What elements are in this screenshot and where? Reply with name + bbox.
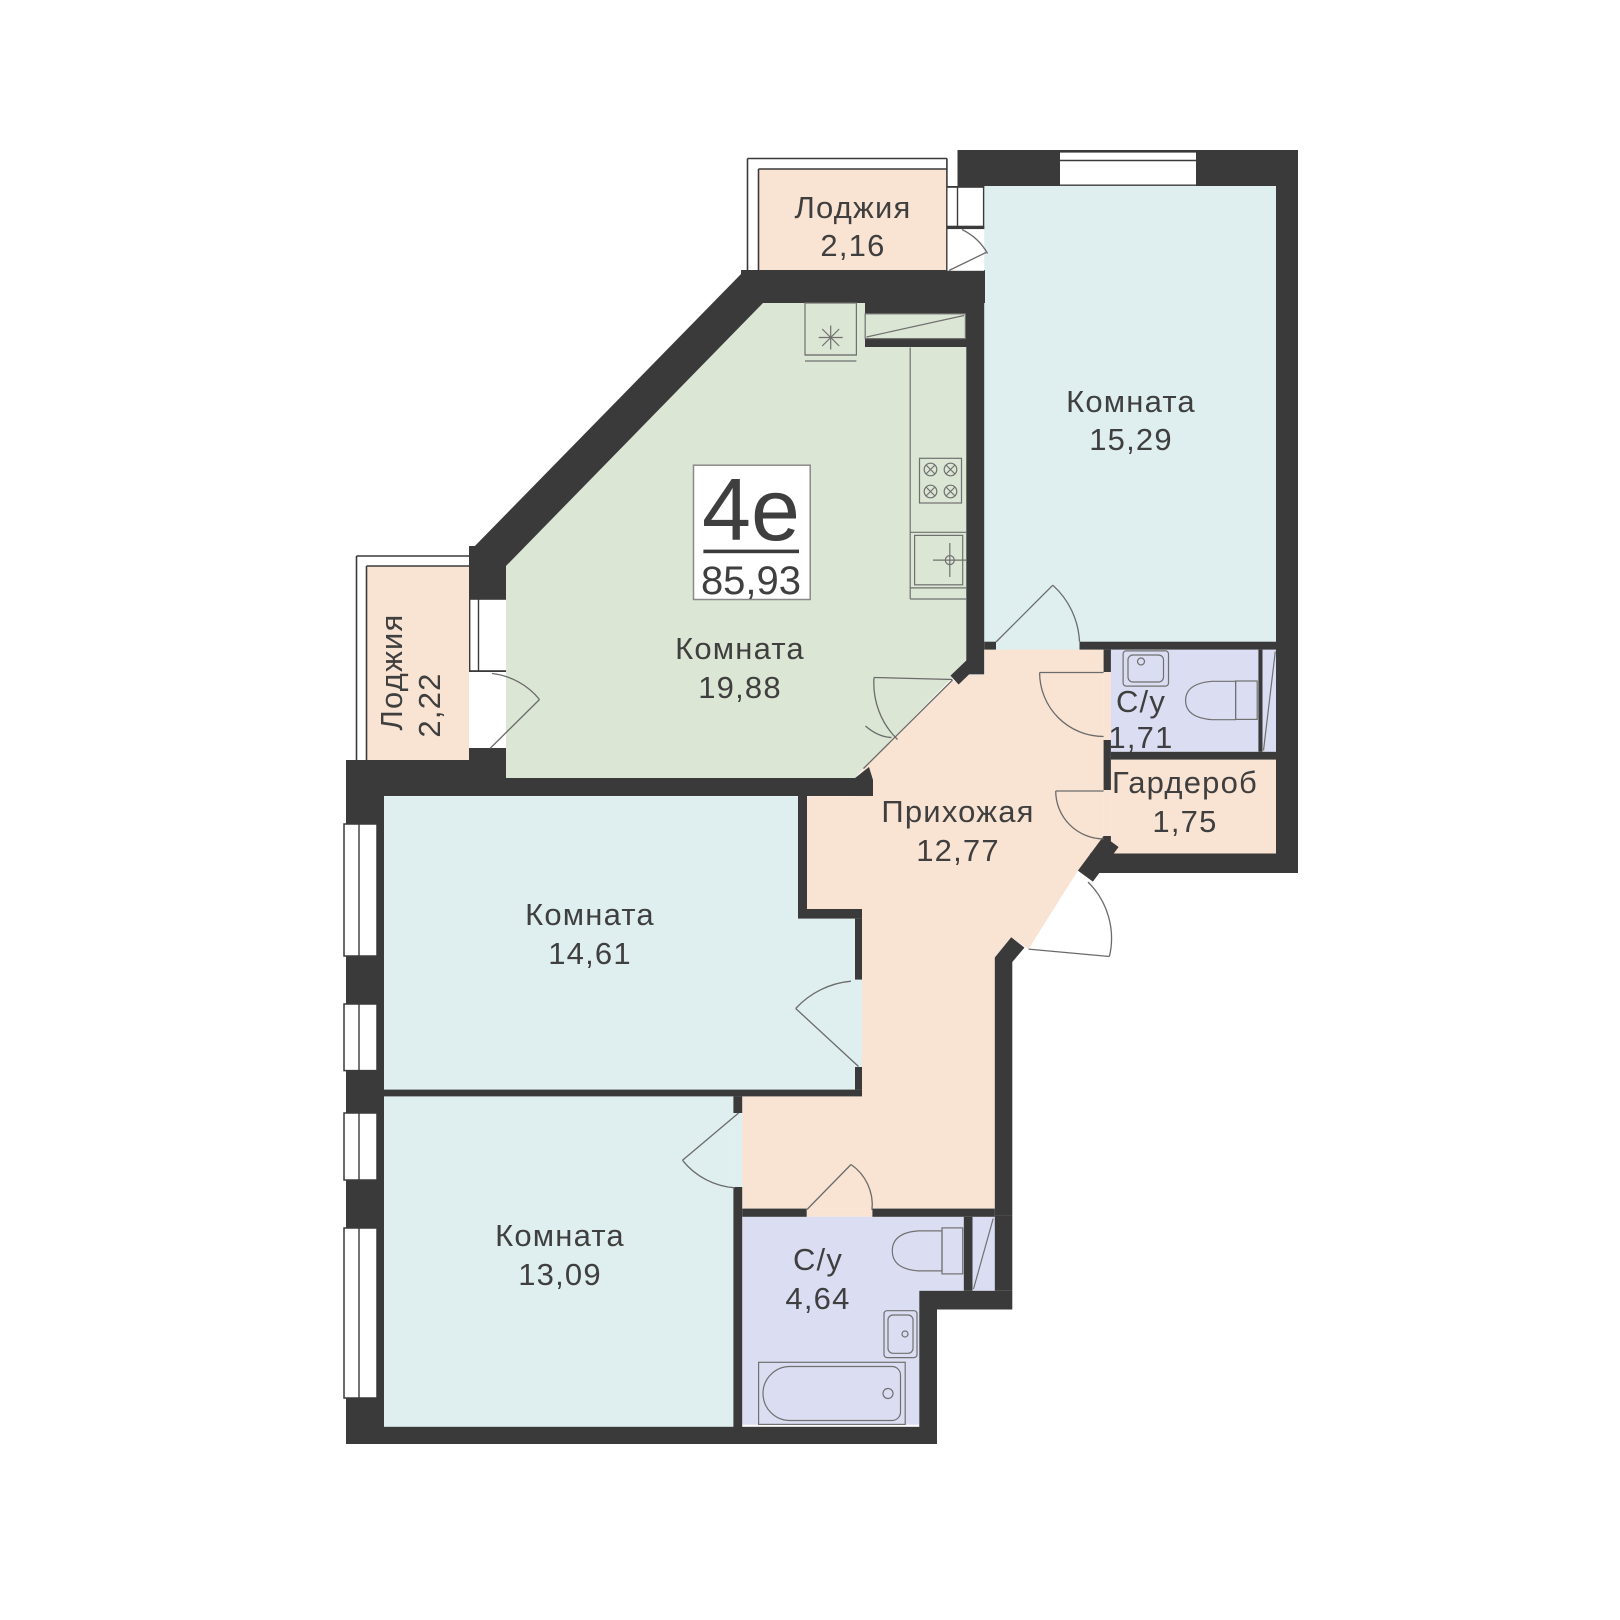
svg-text:Лоджия: Лоджия bbox=[374, 613, 409, 730]
svg-text:1,75: 1,75 bbox=[1152, 804, 1217, 839]
svg-text:Комната: Комната bbox=[495, 1218, 625, 1253]
svg-text:Гардероб: Гардероб bbox=[1112, 765, 1258, 800]
svg-text:С/у: С/у bbox=[1116, 684, 1166, 719]
svg-text:12,77: 12,77 bbox=[916, 833, 1000, 868]
svg-text:Комната: Комната bbox=[525, 897, 655, 932]
svg-text:85,93: 85,93 bbox=[701, 559, 801, 603]
svg-text:Комната: Комната bbox=[675, 631, 805, 666]
svg-text:Комната: Комната bbox=[1066, 384, 1196, 419]
svg-text:Лоджия: Лоджия bbox=[794, 190, 911, 225]
svg-text:4,64: 4,64 bbox=[785, 1281, 850, 1316]
svg-text:Прихожая: Прихожая bbox=[881, 794, 1034, 829]
svg-text:15,29: 15,29 bbox=[1089, 422, 1173, 457]
svg-text:14,61: 14,61 bbox=[548, 936, 632, 971]
svg-text:19,88: 19,88 bbox=[698, 670, 782, 705]
svg-text:1,71: 1,71 bbox=[1108, 720, 1173, 755]
svg-text:2,22: 2,22 bbox=[412, 672, 447, 737]
svg-text:С/у: С/у bbox=[793, 1242, 843, 1277]
svg-text:4е: 4е bbox=[702, 460, 800, 559]
svg-text:13,09: 13,09 bbox=[518, 1257, 602, 1292]
svg-text:2,16: 2,16 bbox=[820, 228, 885, 263]
